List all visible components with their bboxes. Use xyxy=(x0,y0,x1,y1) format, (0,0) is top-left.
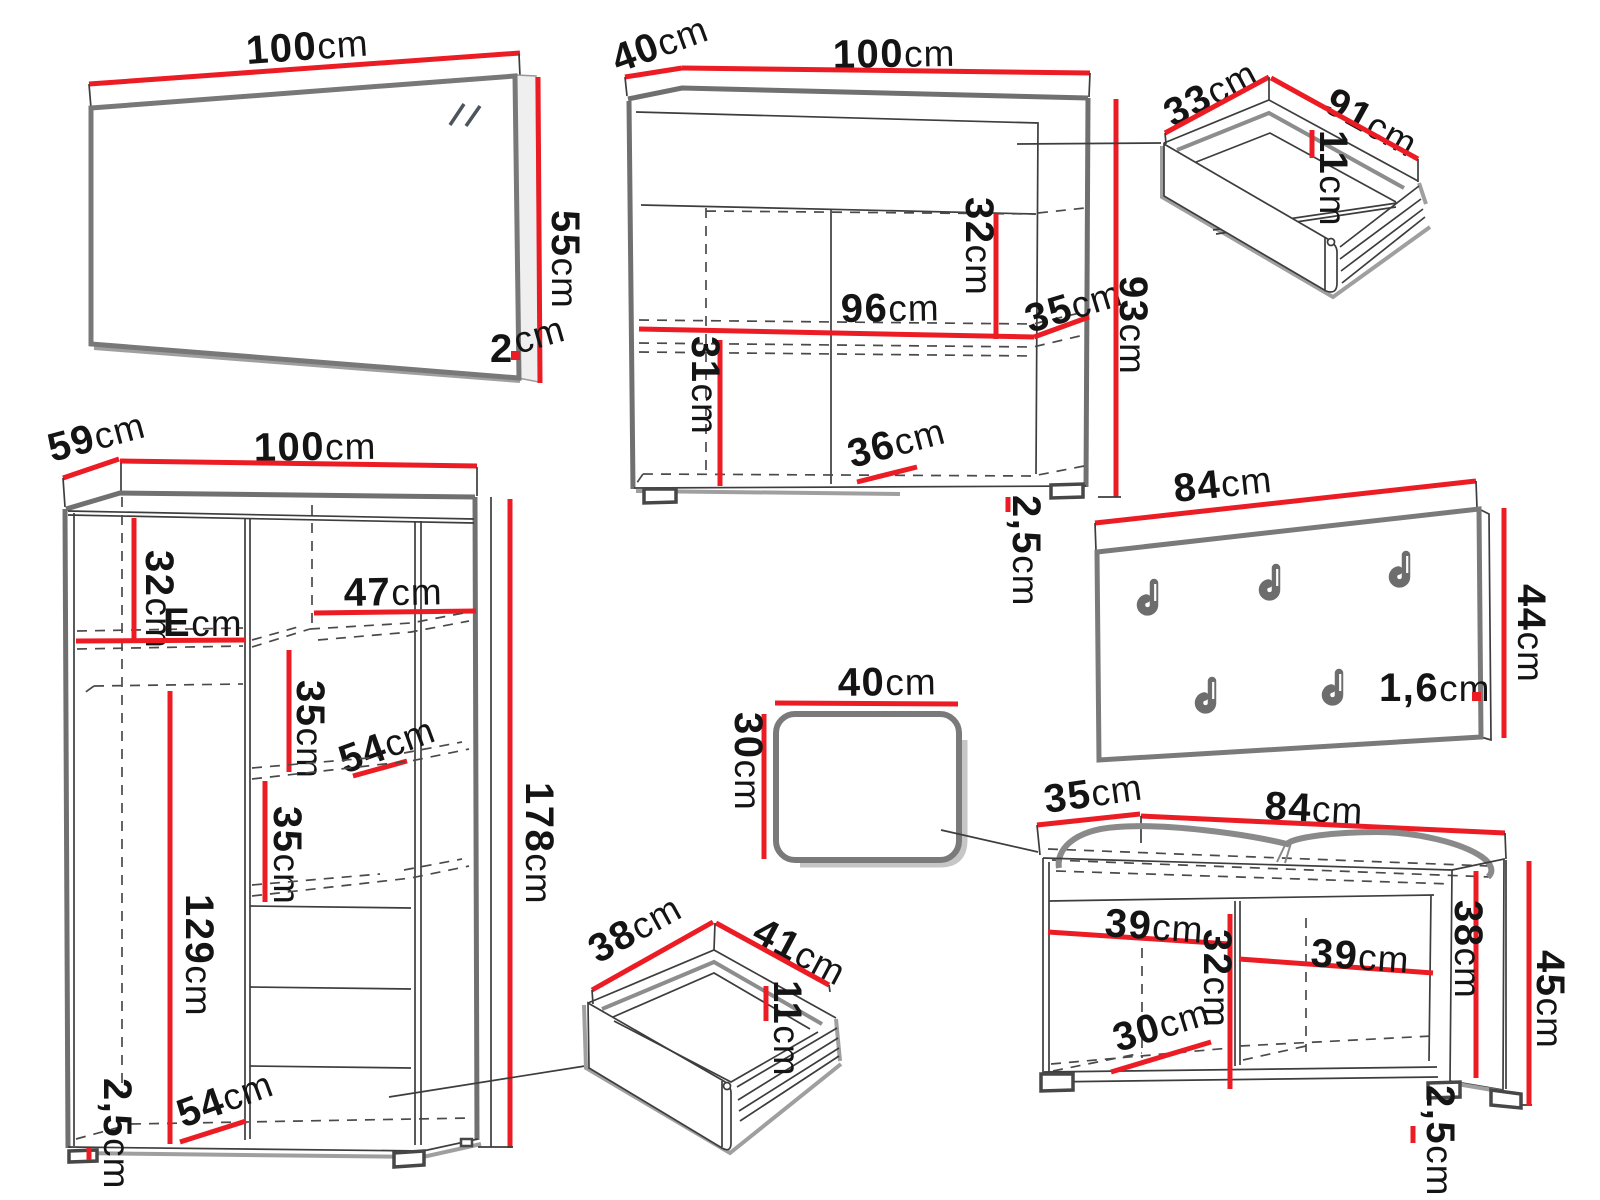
svg-text:2: 2 xyxy=(490,327,514,371)
svg-text:11cm: 11cm xyxy=(765,980,809,1077)
svg-text:96cm: 96cm xyxy=(840,285,940,331)
svg-text:45cm: 45cm xyxy=(1528,950,1572,1049)
svg-text:38cm: 38cm xyxy=(1446,900,1490,999)
svg-text:55cm: 55cm xyxy=(543,210,587,309)
svg-text:47cm: 47cm xyxy=(343,569,443,615)
svg-text:30cm: 30cm xyxy=(726,712,770,811)
svg-text:44cm: 44cm xyxy=(1509,584,1553,683)
svg-text:39cm: 39cm xyxy=(1309,931,1411,982)
svg-text:178cm: 178cm xyxy=(517,782,561,905)
svg-text:39cm: 39cm xyxy=(1103,901,1205,952)
svg-text:2,5cm: 2,5cm xyxy=(1418,1085,1462,1196)
svg-text:2,5cm: 2,5cm xyxy=(1004,495,1048,606)
svg-text:40cm: 40cm xyxy=(837,659,937,705)
svg-text:Ecm: Ecm xyxy=(163,601,243,645)
svg-text:32cm: 32cm xyxy=(957,197,1001,296)
svg-text:2,5cm: 2,5cm xyxy=(95,1078,139,1189)
svg-text:35cm: 35cm xyxy=(265,806,309,905)
svg-text:31cm: 31cm xyxy=(683,336,727,435)
svg-text:1,6cm: 1,6cm xyxy=(1379,666,1490,710)
svg-text:129cm: 129cm xyxy=(177,894,221,1017)
svg-text:93cm: 93cm xyxy=(1111,276,1155,375)
svg-text:11cm: 11cm xyxy=(1311,130,1355,227)
